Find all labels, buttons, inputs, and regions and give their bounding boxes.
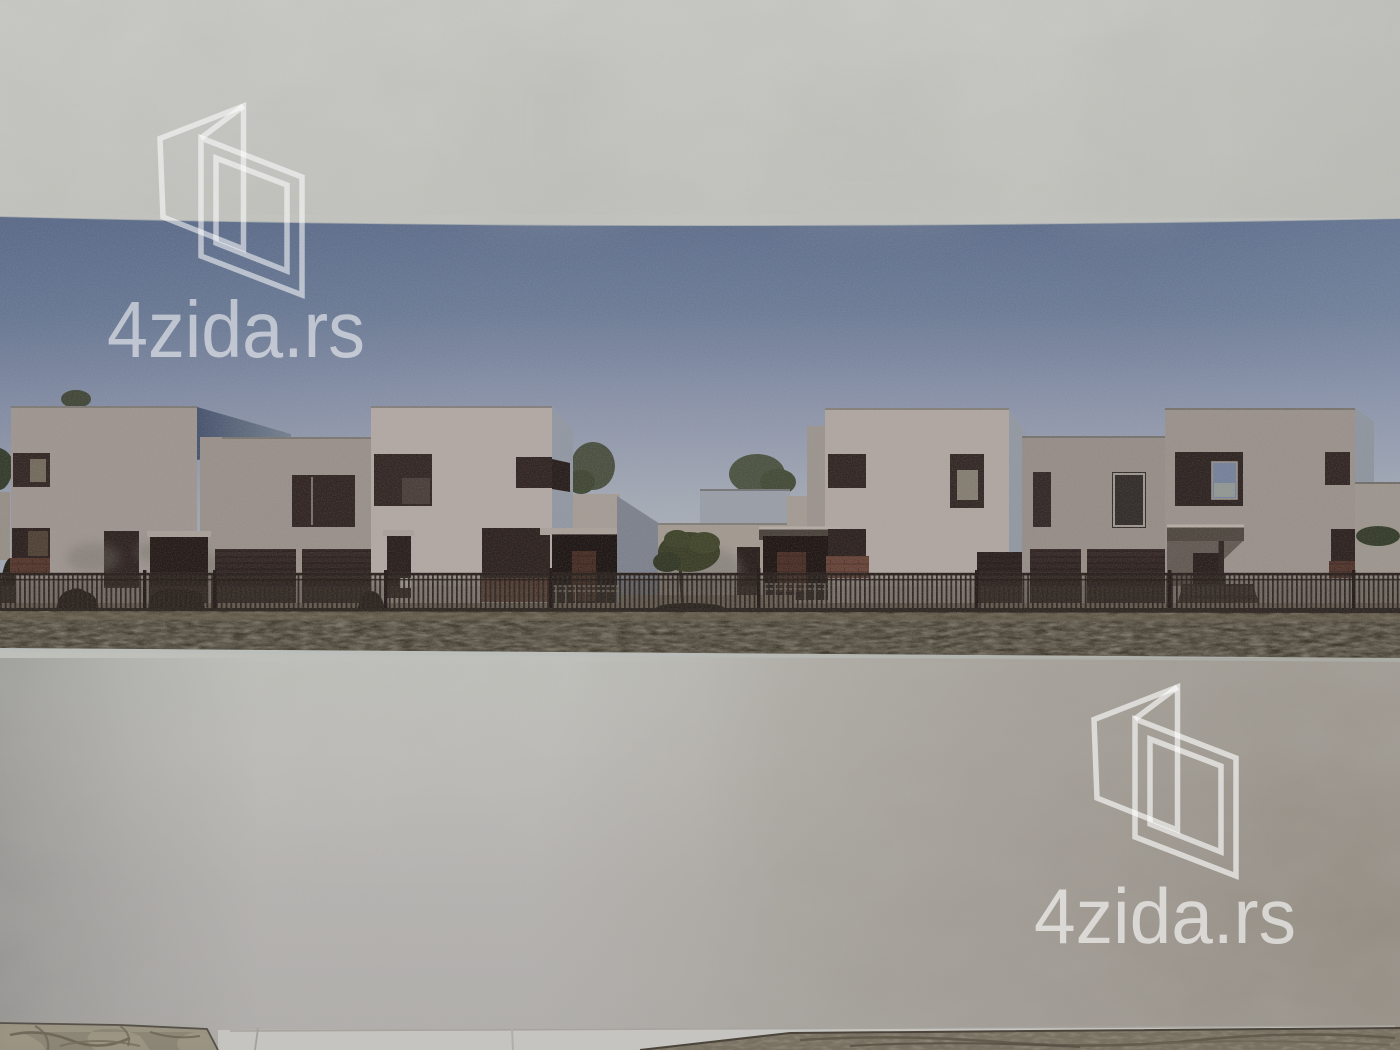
svg-text:4zida.rs: 4zida.rs <box>107 285 365 374</box>
svg-text:4zida.rs: 4zida.rs <box>1034 872 1296 960</box>
